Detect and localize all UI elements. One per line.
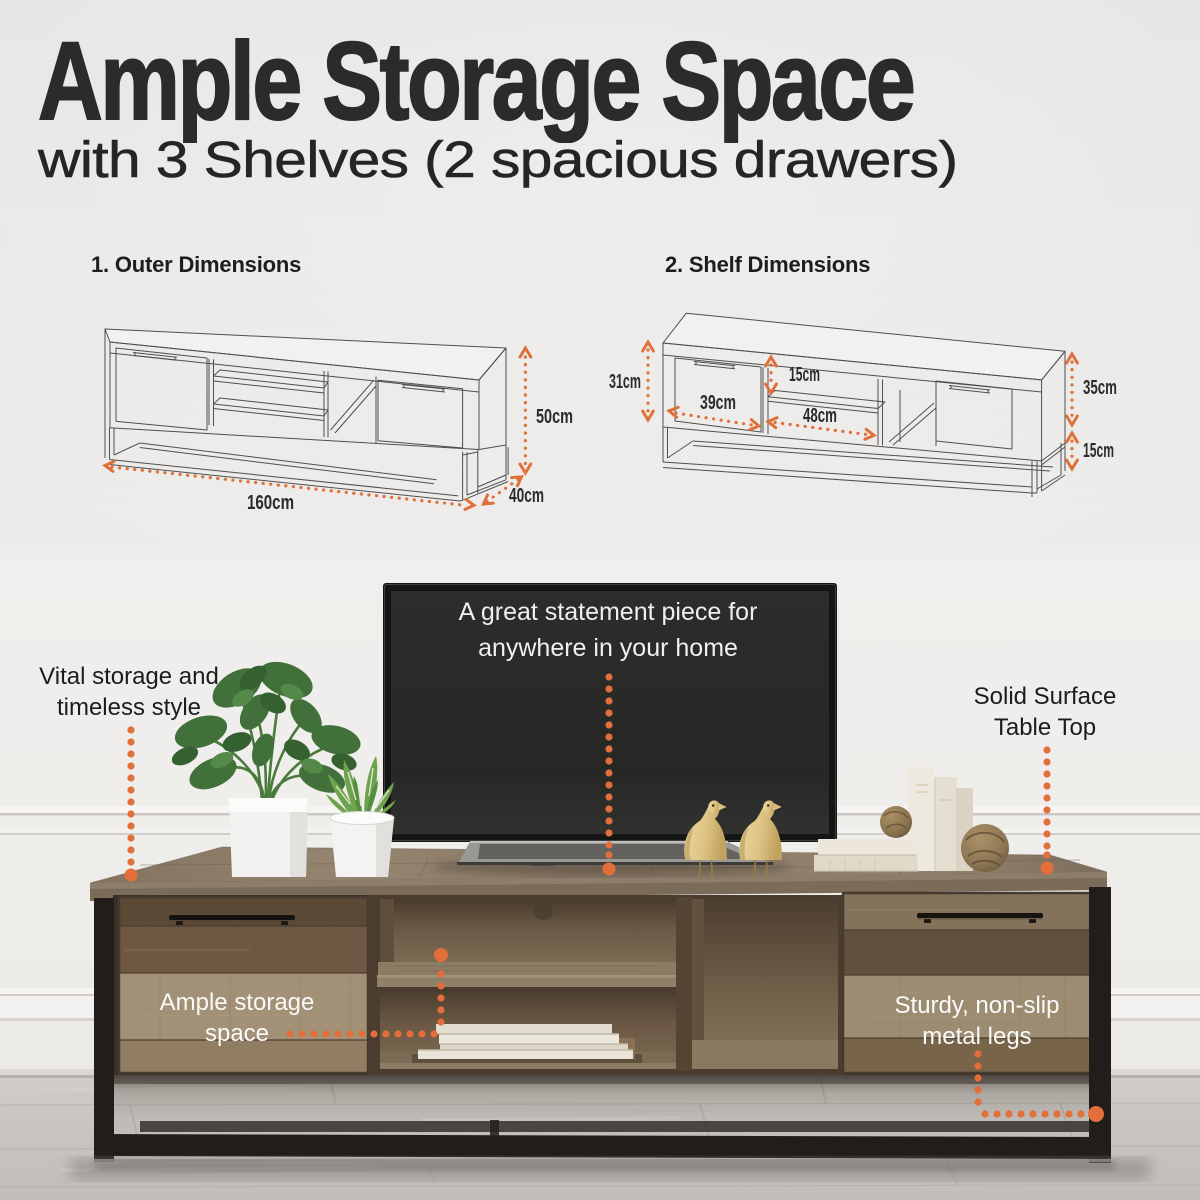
svg-text:50cm: 50cm bbox=[536, 406, 573, 428]
svg-text:35cm: 35cm bbox=[1083, 377, 1117, 399]
svg-text:31cm: 31cm bbox=[609, 371, 641, 393]
svg-text:15cm: 15cm bbox=[789, 364, 820, 386]
svg-text:40cm: 40cm bbox=[509, 485, 544, 507]
svg-text:48cm: 48cm bbox=[803, 405, 837, 427]
svg-text:160cm: 160cm bbox=[247, 492, 294, 514]
svg-text:15cm: 15cm bbox=[1083, 440, 1114, 462]
svg-text:39cm: 39cm bbox=[700, 392, 736, 414]
